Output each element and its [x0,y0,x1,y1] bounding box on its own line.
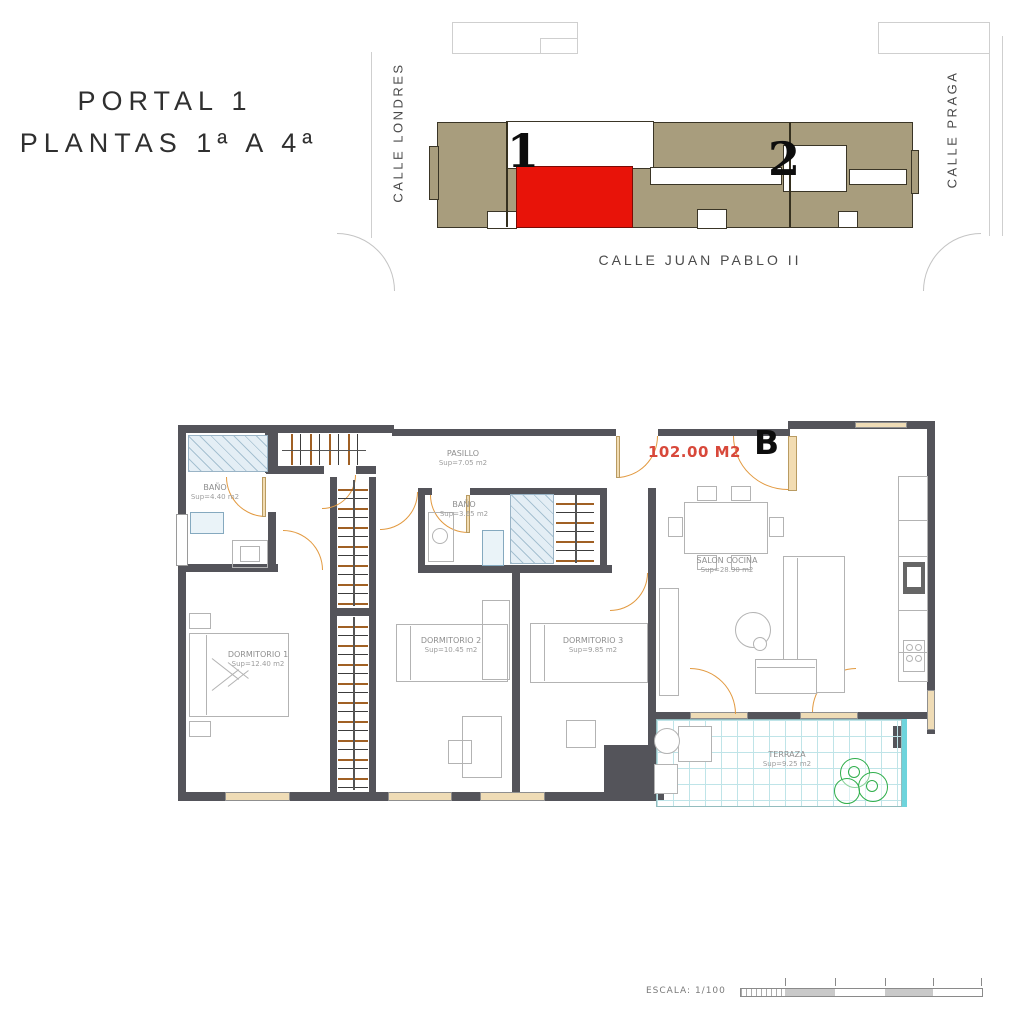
door-leaf [616,436,620,478]
entrance-door-leaf [788,436,797,491]
wardrobe-hanger-rail [338,617,368,790]
bed-headboard-line [206,635,207,715]
window [480,792,545,801]
dining-chair [697,486,717,501]
nightstand [189,613,211,629]
wall-segment [656,712,690,719]
wall-segment [748,712,800,719]
shower-tray [188,435,268,472]
building-step [911,150,919,194]
terrace-door-swing-arc [690,668,736,714]
sideboard [659,588,679,696]
unit-area-label: 102.00 M2 [648,443,741,461]
room-name: SALON COCINA [672,556,782,566]
facade-notch [838,211,858,228]
kitchen-divider [898,556,928,557]
stove-burner [915,655,922,662]
adjacent-building-outline [540,38,578,54]
street-curb-arc [337,233,395,291]
room-label-bano-1: BAÑO Sup=4.40 m2 [183,483,247,502]
room-area: Sup=9.25 m2 [742,760,832,769]
street-edge-line [1002,36,1003,236]
scale-bar-tick [933,978,934,986]
wall-segment [600,488,607,573]
wardrobe-hanger-rail [556,494,594,563]
wall-segment [178,425,186,801]
room-name: TERRAZA [742,750,832,760]
sofa-chaise [755,659,817,694]
room-label-bano-2: BAÑO Sup=3.65 m2 [432,500,496,519]
street-edge-line [989,36,990,236]
kitchen-divider [898,520,928,521]
room-name: PASILLO [418,449,508,459]
door-swing-arc [610,573,648,611]
bathroom-sink [190,512,224,534]
door-swing-arc [380,492,418,530]
courtyard-notch [849,169,907,185]
wall-segment [418,488,425,573]
kitchen-divider [898,610,928,611]
wall-segment [392,429,616,436]
bed [189,633,289,717]
room-area: Sup=10.45 m2 [406,646,496,655]
portal-2-number: 2 [768,136,800,182]
wall-segment [330,477,337,792]
scale-bar-tick [885,978,886,986]
wall-segment [356,466,376,474]
window [176,514,188,566]
stove-burner [906,655,913,662]
room-area: Sup=7.05 m2 [418,459,508,468]
toilet-seat [240,546,260,562]
wall-segment [927,421,935,734]
window [800,712,858,719]
stove-burner [906,644,913,651]
wardrobe-hanger-rail [338,480,368,606]
wall-segment [268,512,276,572]
scale-bar-segment [785,989,835,996]
room-name: BAÑO [432,500,496,510]
room-name: DORMITORIO 1 [213,650,303,660]
window [225,792,290,801]
door-leaf [262,477,266,517]
room-label-dormitorio-3: DORMITORIO 3 Sup=9.85 m2 [548,636,638,655]
street-label-calle-praga: CALLE PRAGA [945,55,960,205]
building-step [429,146,439,200]
plant [834,778,860,804]
adjacent-building-outline [878,22,990,54]
wall-segment [369,477,376,792]
wall-segment [604,745,656,792]
plant-inner [866,780,878,792]
terrace-chair [654,764,678,794]
terrace-chair [654,728,680,754]
dining-chair [769,517,784,537]
facade-notch [487,211,517,229]
scale-bar-tick [835,978,836,986]
side-table [566,720,596,748]
chair [448,740,472,764]
page-title-line1: PORTAL 1 [35,86,295,117]
room-area: Sup=4.40 m2 [183,493,247,502]
street-label-calle-juan-pablo-ii: CALLE JUAN PABLO II [560,252,840,268]
sofa-cushion-line [757,667,815,668]
dining-table [684,502,768,554]
window [927,690,935,730]
bed-headboard-line [544,625,545,681]
scale-bar-hatched-segment [741,989,785,996]
closet-hanger-rail [282,434,366,465]
facade-notch [697,209,727,229]
room-label-salon-cocina: SALON COCINA Sup=28.90 m2 [672,556,782,575]
scale-bar-segment [885,989,933,996]
street-curb-arc [923,233,981,291]
floor-plan-sheet: PORTAL 1 PLANTAS 1ª A 4ª CALLE LONDRES C… [0,0,1013,1024]
wall-segment [858,712,927,719]
window [855,422,907,428]
shower-tray [510,494,554,564]
street-label-calle-londres: CALLE LONDRES [391,48,406,218]
room-name: DORMITORIO 3 [548,636,638,646]
courtyard-notch [650,167,782,185]
coffee-table-small [753,637,767,651]
terrace-table [678,726,712,762]
street-edge-line [371,52,372,238]
kitchen-sink-basin [907,567,921,587]
room-label-dormitorio-1: DORMITORIO 1 Sup=12.40 m2 [213,650,303,669]
wall-segment [512,572,520,792]
room-area: Sup=9.85 m2 [548,646,638,655]
room-area: Sup=12.40 m2 [213,660,303,669]
wall-segment [266,466,324,474]
room-label-dormitorio-2: DORMITORIO 2 Sup=10.45 m2 [406,636,496,655]
scale-bar-tick [785,978,786,986]
bathroom-sink-basin [432,528,448,544]
room-label-terraza: TERRAZA Sup=9.25 m2 [742,750,832,769]
terrace-glass-rail [902,719,907,807]
portal-1-number: 1 [507,128,539,174]
room-label-pasillo: PASILLO Sup=7.05 m2 [418,449,508,468]
toilet [482,530,504,566]
door-swing-arc [283,530,323,570]
plant-inner [848,766,860,778]
room-name: BAÑO [183,483,247,493]
dining-chair [668,517,683,537]
wall-segment [178,425,394,433]
dining-chair [731,486,751,501]
room-area: Sup=28.90 m2 [672,566,782,575]
scale-bar-tick [981,978,982,986]
stove-burner [915,644,922,651]
nightstand [189,721,211,737]
wall-segment [330,608,376,616]
room-name: DORMITORIO 2 [406,636,496,646]
window [388,792,452,801]
scale-label: ESCALA: 1/100 [646,986,726,996]
unit-letter: B [754,426,779,459]
page-title-line2: PLANTAS 1ª A 4ª [14,128,324,159]
room-area: Sup=3.65 m2 [432,510,496,519]
